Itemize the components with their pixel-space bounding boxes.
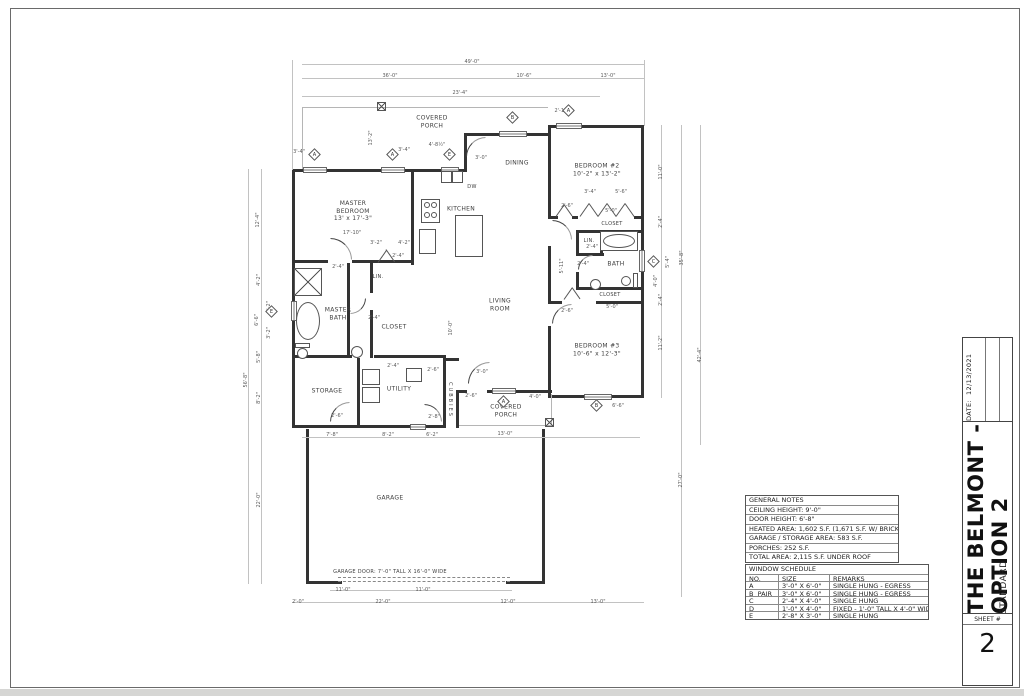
schedule-cell: D (746, 605, 778, 612)
wall (576, 233, 579, 255)
fixture-circle (297, 348, 308, 359)
dimension-label: 11'-0" (658, 164, 664, 179)
fixture-circle (431, 212, 437, 218)
window-tag-C: C (647, 255, 660, 268)
window-schedule-table: WINDOW SCHEDULE NO.SIZEREMARKS A3'-0" X … (745, 564, 929, 620)
dimension-label: 2'-4" (332, 264, 344, 270)
fixture-rect (452, 171, 463, 183)
fixture-rect (441, 171, 452, 183)
fixture-arc (466, 137, 486, 157)
porch-edge-line (302, 107, 303, 169)
dimension-label: 36'-0" (382, 73, 397, 79)
fixture-arc (578, 255, 593, 270)
general-notes-row: HEATED AREA: 1,602 S.F. (1,671 S.F. W/ B… (746, 524, 898, 534)
room-label: DW (467, 184, 476, 190)
fixture-dash (338, 577, 510, 578)
dimension-label: 3'-2" (266, 327, 272, 339)
window (584, 394, 612, 400)
dimension-line (644, 60, 645, 126)
wall (357, 358, 360, 428)
fixture-arc (552, 304, 572, 324)
window-tag-A: A (386, 148, 399, 161)
schedule-cell: C (746, 597, 778, 604)
title-block: DATE: 12/13/2021 THE BELMONT - OPTION 2 … (962, 337, 1013, 686)
fixture-rect (633, 273, 638, 288)
general-notes-row: TOTAL AREA: 2,115 S.F. UNDER ROOF (746, 552, 898, 562)
dimension-label: 2'-4" (387, 363, 399, 369)
dimension-label: 4'-0" (529, 394, 541, 400)
room-label: UTILITY (387, 385, 411, 393)
fixture-arc (468, 362, 490, 384)
window (492, 388, 516, 394)
general-notes-row: GARAGE / STORAGE AREA: 583 S.F. (746, 533, 898, 543)
drawing-sheet: MASTER BEDROOM 13' x 17'-3"17'-10"KITCHE… (0, 0, 1024, 696)
fixture-xbox (545, 418, 554, 427)
dimension-label: 35'-8" (679, 250, 685, 265)
wall (634, 216, 644, 219)
dimension-label: 2'-4" (586, 244, 598, 250)
fixture-circle (351, 346, 363, 358)
dimension-label: 6'-2" (426, 432, 438, 438)
room-label: MASTER BATH (325, 307, 352, 322)
date-label: DATE: (965, 400, 973, 421)
porch-edge-line (302, 107, 548, 108)
window (556, 123, 582, 129)
room-label: BEDROOM #2 10'-2" x 13'-2" (573, 163, 621, 178)
fixture-arc (424, 404, 442, 422)
dimension-line (700, 125, 701, 445)
date-value: 12/13/2021 (965, 353, 973, 394)
dimension-label: 12'-0" (500, 599, 515, 605)
dimension-label: 2'-6" (465, 393, 477, 399)
schedule-row: C2'-4" X 4'-0"SINGLE HUNG (746, 596, 928, 604)
dimension-label: 23'-4" (452, 90, 467, 96)
porch-edge-line (459, 425, 552, 426)
room-label: LIVING ROOM (489, 298, 511, 313)
window-tag-letter: A (567, 108, 570, 114)
wall (443, 358, 446, 428)
dimension-line (302, 78, 644, 79)
dimension-label: 2'-6" (427, 367, 439, 373)
wall (443, 358, 459, 361)
project-subtitle: STANDARD (999, 422, 1009, 614)
dimension-label: 22'-0" (256, 492, 262, 507)
date-text: DATE: 12/13/2021 (965, 338, 973, 421)
room-label: KITCHEN (447, 205, 475, 213)
dimension-label: 2'-0" (292, 599, 304, 605)
sheet-number-box: SHEET # 2 (963, 613, 1012, 685)
fixture-arc (552, 220, 572, 240)
wall (292, 260, 328, 263)
fixture-rect (362, 369, 380, 385)
schedule-cell: 3'-0" X 6'-0" (778, 590, 829, 597)
schedule-cell: SINGLE HUNG - EGRESS (829, 582, 928, 589)
schedule-row: A3'-0" X 6'-0"SINGLE HUNG - EGRESS (746, 581, 928, 589)
room-label: COVERED PORCH (490, 404, 521, 419)
schedule-cell: B PAIR (746, 590, 778, 597)
window-tag-letter: C (652, 259, 656, 265)
window (303, 167, 327, 173)
window-tag-A: A (562, 104, 575, 117)
window-schedule-title: WINDOW SCHEDULE (746, 565, 928, 574)
schedule-header-cell: SIZE (778, 575, 829, 582)
fixture-oval (296, 302, 320, 340)
date-box-divider (985, 338, 986, 421)
window (499, 131, 527, 137)
wall (548, 326, 551, 395)
fixture-arc (330, 402, 350, 422)
fixture-rect (362, 387, 380, 403)
schedule-cell: SINGLE HUNG - EGRESS (829, 590, 928, 597)
window-tag-E: E (443, 148, 456, 161)
wall (411, 169, 414, 265)
dimension-label: 3'-4" (584, 189, 596, 195)
dimension-label: 3'-2" (370, 240, 382, 246)
dimension-label: 13'-0" (590, 599, 605, 605)
dimension-label: 7'-8" (326, 432, 338, 438)
schedule-cell: FIXED - 1'-0" TALL X 4'-0" WIDE (829, 605, 928, 612)
dimension-label: 5'-8" (256, 351, 262, 363)
dimension-line (302, 96, 600, 97)
room-label: BATH (607, 260, 624, 268)
fixture-arc (350, 298, 366, 314)
room-label: MASTER BEDROOM 13' x 17'-3" (334, 200, 372, 223)
dimension-label: 13'-2" (368, 130, 374, 145)
window-tag-letter: B (595, 403, 598, 409)
dimension-label: 2'-4" (658, 216, 664, 228)
dimension-label: 4'-0" (653, 275, 659, 287)
window (639, 250, 645, 272)
room-label: GARAGE DOOR: 7'-0" TALL X 16'-0" WIDE (333, 569, 447, 575)
fixture-diag (556, 205, 565, 217)
dimension-label: 10'-0" (448, 320, 454, 335)
window (381, 167, 405, 173)
dimension-label: 2'-4" (368, 315, 380, 321)
schedule-cell: E (746, 612, 778, 619)
fixture-circle (431, 202, 437, 208)
wall (306, 581, 342, 584)
dimension-label: 3'-4" (293, 149, 305, 155)
dimension-label: 2'-4" (658, 294, 664, 306)
general-notes-table: GENERAL NOTES CEILING HEIGHT: 9'-0"DOOR … (745, 495, 899, 563)
wall (572, 216, 578, 219)
dimension-label: 10'-6" (516, 73, 531, 79)
dimension-label: 6'-6" (612, 403, 624, 409)
window-tag-B: B (506, 111, 519, 124)
dimension-line (261, 169, 262, 584)
schedule-cell: 1'-0" X 4'-0" (778, 605, 829, 612)
schedule-row: B PAIR3'-0" X 6'-0"SINGLE HUNG - EGRESS (746, 589, 928, 597)
schedule-cell: 2'-8" X 3'-0" (778, 612, 829, 619)
wall (506, 581, 545, 584)
fixture-diag (625, 203, 635, 217)
dimension-label: 4'-2" (398, 240, 410, 246)
window-tag-B: B (590, 399, 603, 412)
dimension-label: 4'-2" (256, 274, 262, 286)
wall (374, 355, 446, 358)
fixture-xbox (294, 268, 322, 296)
fixture-circle (424, 212, 430, 218)
general-notes-row: DOOR HEIGHT: 6'-8" (746, 514, 898, 524)
general-notes-row: PORCHES: 252 S.F. (746, 543, 898, 553)
wall (548, 133, 551, 218)
dimension-label: 11'-0" (335, 587, 350, 593)
dimension-label: 4'-8½" (429, 142, 446, 148)
window-tag-letter: B (511, 115, 514, 121)
dimension-label: 17'-10" (343, 230, 361, 236)
fixture-circle (621, 276, 631, 286)
dimension-label: 2'-4" (392, 253, 404, 259)
schedule-row: D1'-0" X 4'-0"FIXED - 1'-0" TALL X 4'-0"… (746, 604, 928, 612)
window-tag-letter: A (313, 152, 316, 158)
title-box: THE BELMONT - OPTION 2 STANDARD (963, 422, 1012, 614)
dimension-label: 49'-0" (464, 59, 479, 65)
wall (548, 301, 562, 304)
dimension-line (302, 437, 640, 438)
schedule-cell: 2'-4" X 4'-0" (778, 597, 829, 604)
fixture-circle (424, 202, 430, 208)
fixture-diag (580, 203, 590, 217)
room-label: LIN. (373, 274, 384, 280)
wall (456, 390, 459, 428)
room-label: STORAGE (312, 387, 343, 395)
fixture-xbox (377, 102, 386, 111)
wall (306, 429, 309, 581)
room-label: BEDROOM #3 10'-6" x 12'-3" (573, 343, 621, 358)
schedule-cell: A (746, 582, 778, 589)
dimension-label: 13'-0" (497, 431, 512, 437)
sheet-label: SHEET # (963, 614, 1012, 625)
room-label: CLOSET (601, 221, 622, 227)
window-tag-letter: A (391, 152, 394, 158)
schedule-cell: 3'-0" X 6'-0" (778, 582, 829, 589)
dimension-line (681, 125, 682, 597)
wall (352, 260, 414, 263)
general-notes-title: GENERAL NOTES (746, 496, 898, 505)
window-tag-letter: A (502, 399, 505, 405)
wall (596, 301, 644, 304)
dimension-label: 5'-6" (615, 189, 627, 195)
fixture-oval (603, 234, 635, 248)
room-label: CLOSET (381, 323, 406, 331)
room-label: COVERED PORCH (416, 115, 447, 130)
schedule-header-cell: NO. (746, 575, 778, 582)
dimension-label: 5'-11" (559, 258, 565, 273)
room-label: CLOSET (599, 292, 620, 298)
dimension-label: 56'-8" (243, 372, 249, 387)
schedule-row: E2'-8" X 3'-0"SINGLE HUNG (746, 611, 928, 619)
fixture-rect (406, 368, 422, 382)
general-notes-row: CEILING HEIGHT: 9'-0" (746, 505, 898, 515)
sheet-number: 2 (963, 625, 1012, 664)
dimension-label: 13'-0" (600, 73, 615, 79)
dimension-label: 3'-4" (398, 147, 410, 153)
date-box-divider (999, 338, 1000, 421)
dimension-label: 12'-4" (255, 212, 261, 227)
dimension-label: 8'-2" (256, 392, 262, 404)
fixture-rect (419, 229, 436, 254)
fixture-dash (338, 581, 510, 582)
fixture-circle (590, 279, 601, 290)
schedule-cell: SINGLE HUNG (829, 612, 928, 619)
fixture-diag (564, 288, 573, 300)
dimension-label: 11'-2" (658, 335, 664, 350)
window-tag-A: A (308, 148, 321, 161)
date-box: DATE: 12/13/2021 (963, 338, 1012, 422)
wall (548, 246, 551, 303)
fixture-arc (330, 238, 352, 260)
fixture-diag (616, 203, 626, 217)
window-tag-letter: E (270, 309, 273, 315)
dimension-label: 8'-2" (382, 432, 394, 438)
room-label: DINING (505, 159, 529, 167)
dimension-label: 6'-6" (254, 314, 260, 326)
window-tag-letter: E (448, 152, 451, 158)
dimension-label: 42'-4" (697, 347, 703, 362)
wall (542, 429, 545, 581)
fixture-rect (455, 215, 483, 257)
window-schedule-header: NO.SIZEREMARKS (746, 574, 928, 582)
window (410, 424, 426, 430)
bottom-edge-strip (0, 689, 1024, 696)
dimension-label: 11'-0" (415, 587, 430, 593)
wall (292, 169, 295, 428)
room-label: GARAGE (377, 494, 404, 502)
dimension-label: 22'-0" (375, 599, 390, 605)
schedule-cell: SINGLE HUNG (829, 597, 928, 604)
room-label: CUBBIES (447, 382, 453, 418)
schedule-header-cell: REMARKS (829, 575, 928, 582)
dimension-label: 5'-0" (606, 304, 618, 310)
dimension-label: 5'-4" (665, 256, 671, 268)
dimension-label: 27'-0" (678, 472, 684, 487)
